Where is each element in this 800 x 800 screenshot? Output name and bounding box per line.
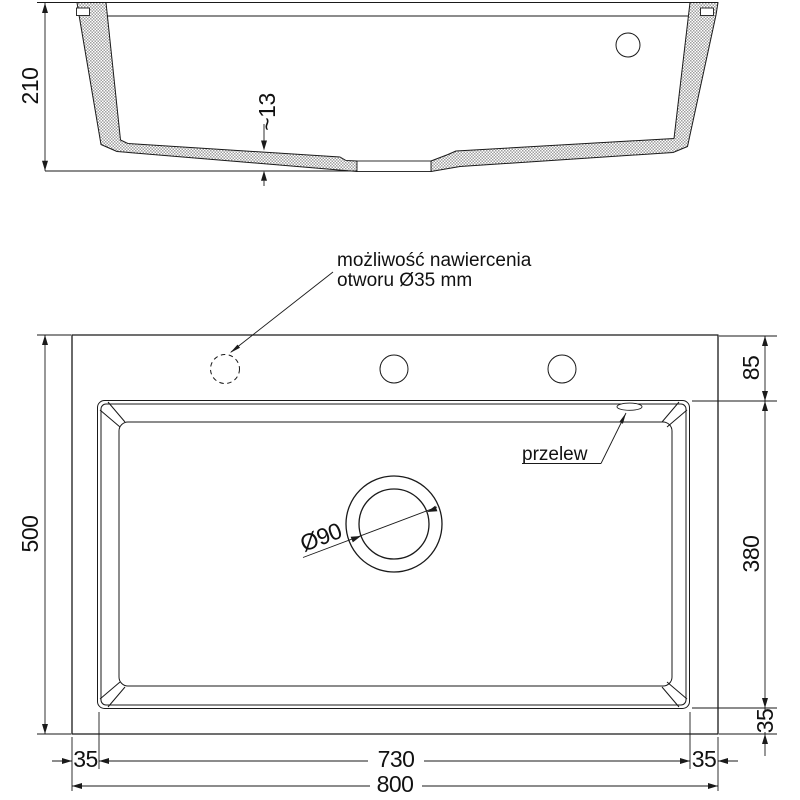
dim-bowl-length-text: 380 [738, 536, 764, 573]
plan-overflow-slot [617, 403, 642, 410]
dim-overall-width-text: 800 [377, 771, 414, 797]
section-drain-recess [357, 161, 431, 172]
dim-overall-depth-text: 500 [17, 516, 43, 553]
drill-note-line2: otworu Ø35 mm [337, 270, 472, 291]
dim-bowl-bottom-margin-text: 35 [752, 709, 778, 734]
overflow-label-text: przelew [522, 444, 588, 465]
dim-bowl-width-text: 730 [378, 746, 415, 772]
section-right-rim-notch [701, 8, 714, 16]
dim-floor-thickness-text: ~13 [254, 93, 280, 131]
section-left-rim-notch [77, 8, 90, 16]
sink-technical-drawing: 210 ~13 [0, 0, 800, 800]
dim-left-margin-text: 35 [73, 746, 98, 772]
drill-note-line1: możliwość nawiercenia [337, 250, 532, 271]
dim-section-height-text: 210 [17, 68, 43, 105]
dim-deck-top-text: 85 [738, 356, 764, 381]
dim-right-margin-text: 35 [692, 746, 717, 772]
